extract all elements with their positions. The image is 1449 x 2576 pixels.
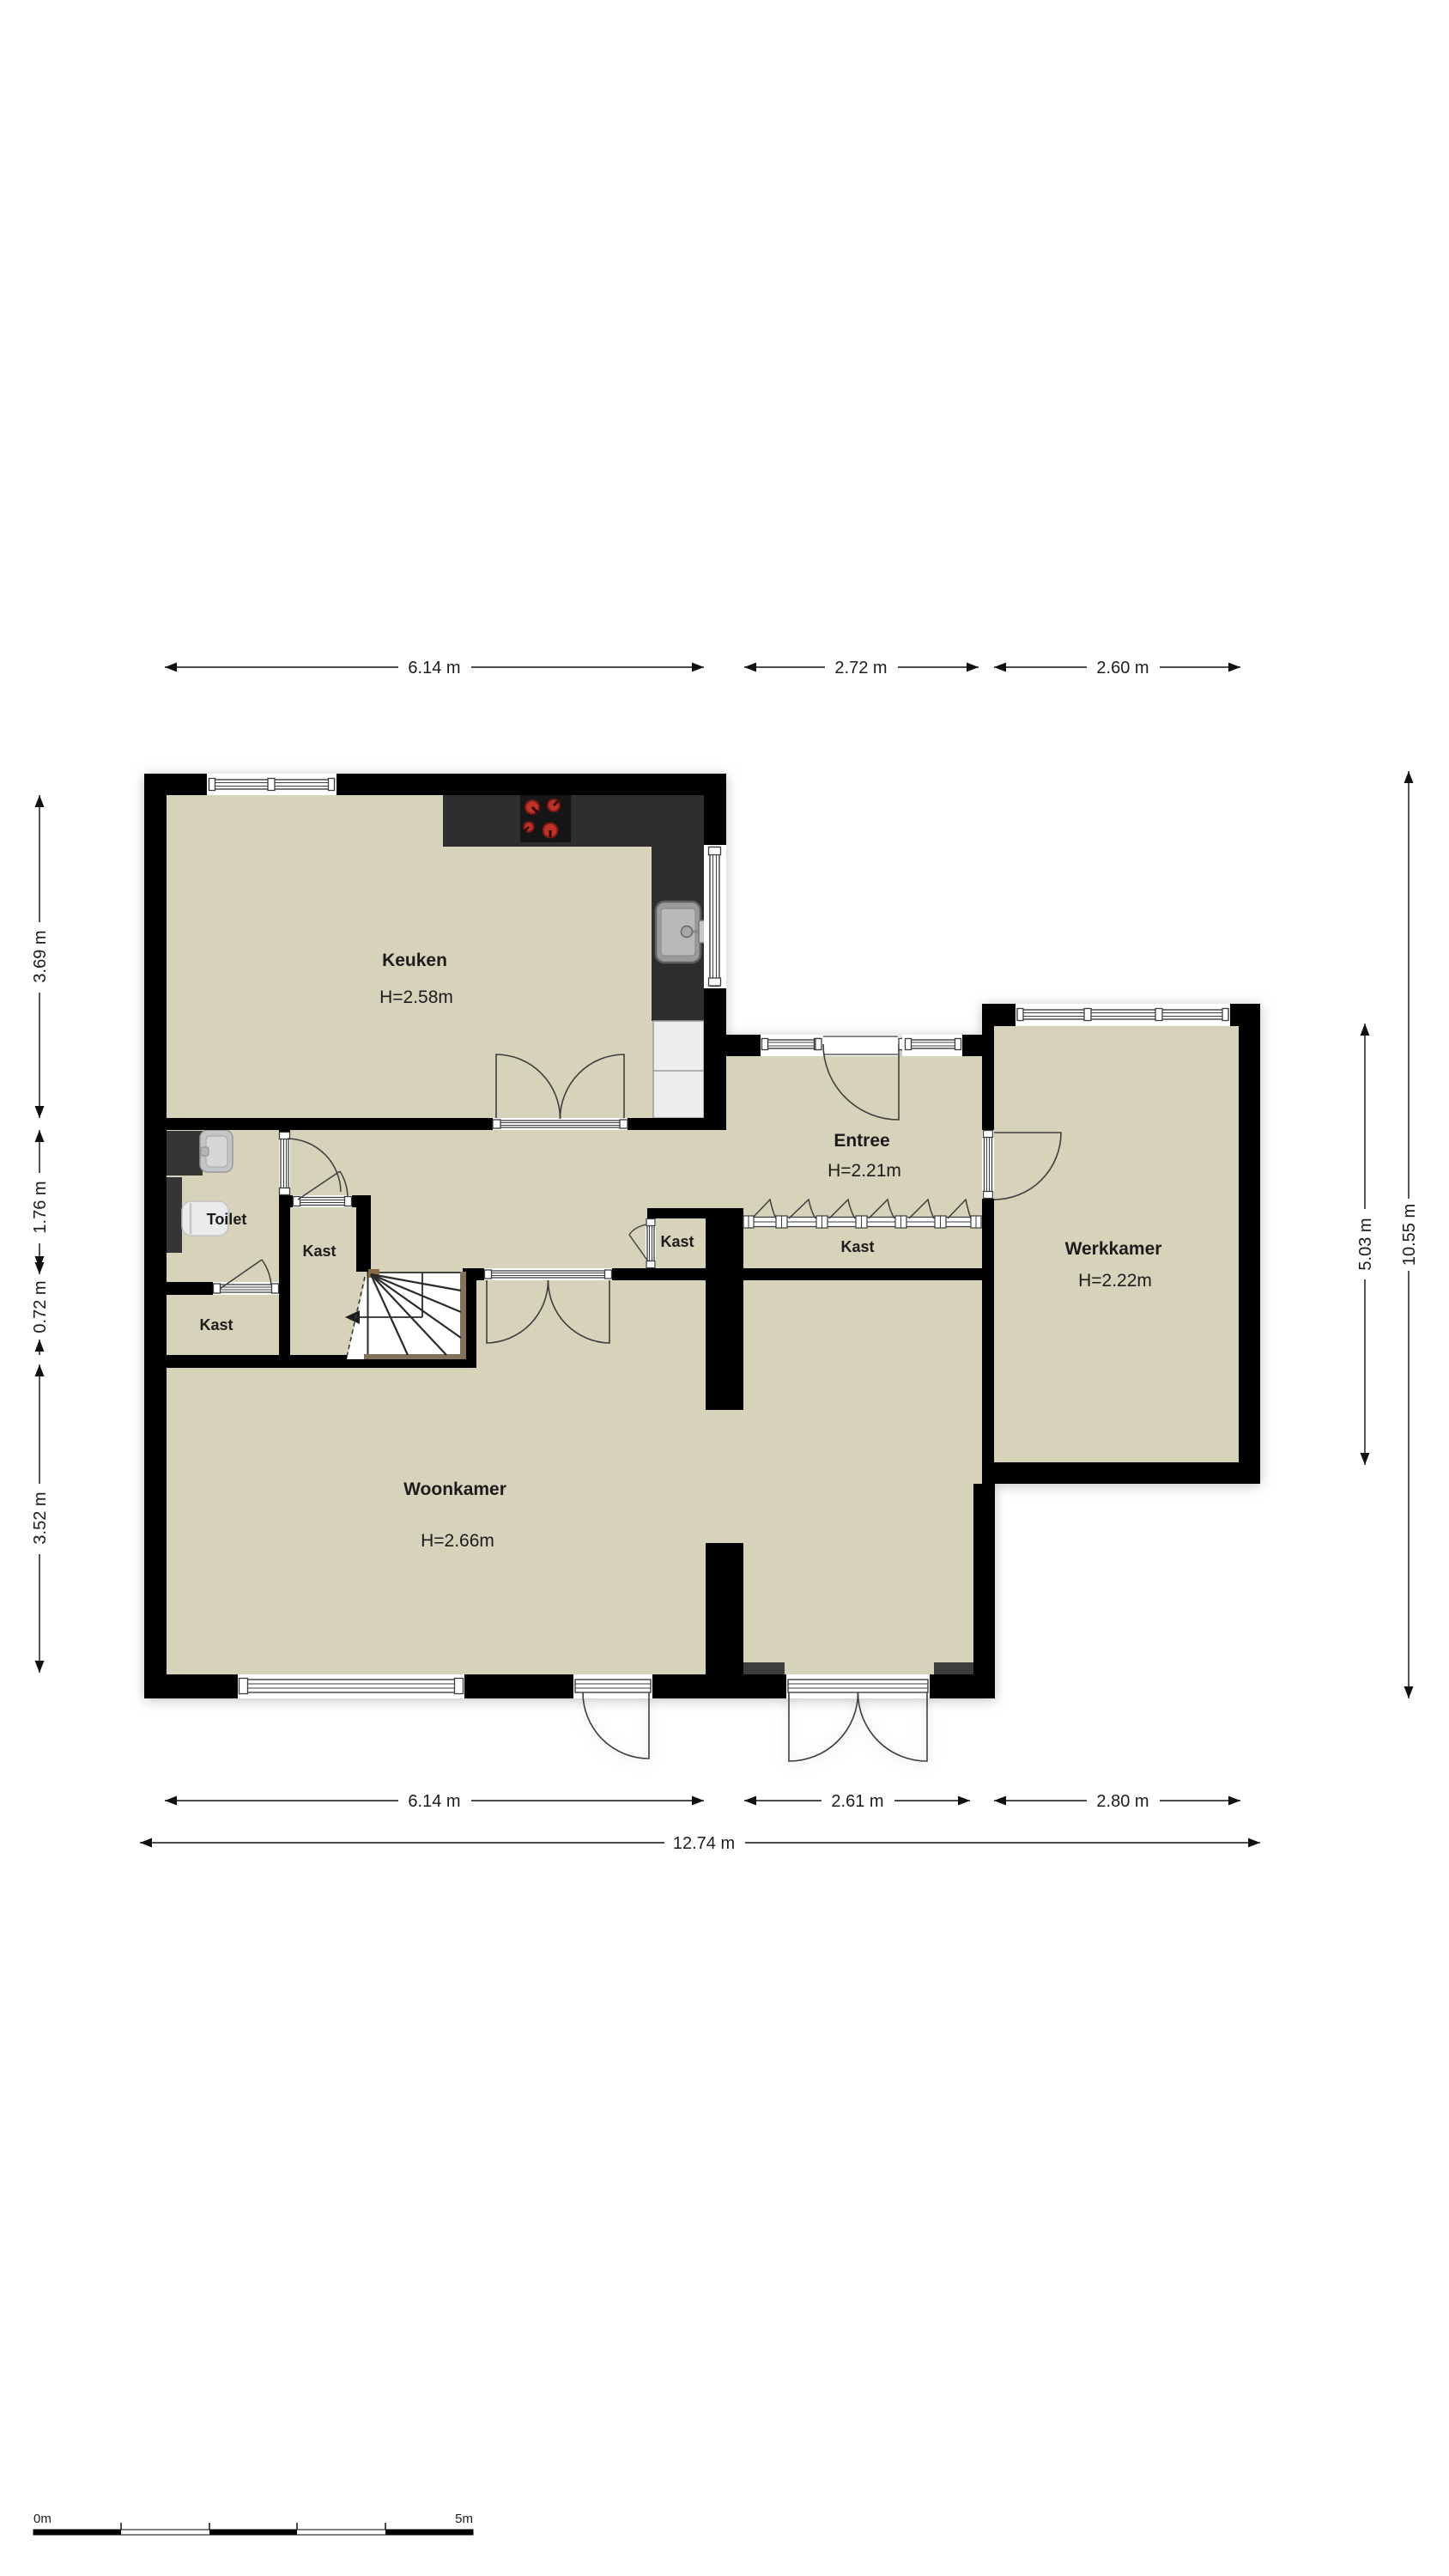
svg-text:3.52 m: 3.52 m bbox=[31, 1492, 50, 1544]
svg-text:Woonkamer: Woonkamer bbox=[403, 1479, 506, 1499]
svg-text:2.80 m: 2.80 m bbox=[1096, 1792, 1149, 1811]
svg-text:Kast: Kast bbox=[302, 1242, 336, 1260]
svg-text:Entree: Entree bbox=[834, 1131, 889, 1151]
svg-text:2.60 m: 2.60 m bbox=[1096, 659, 1149, 677]
svg-text:6.14 m: 6.14 m bbox=[408, 659, 460, 677]
svg-text:Keuken: Keuken bbox=[382, 951, 447, 970]
svg-text:6.14 m: 6.14 m bbox=[408, 1792, 460, 1811]
svg-text:0m: 0m bbox=[33, 2512, 52, 2526]
svg-text:Kast: Kast bbox=[199, 1316, 233, 1334]
svg-text:H=2.58m: H=2.58m bbox=[379, 987, 453, 1007]
svg-text:12.74 m: 12.74 m bbox=[673, 1834, 735, 1853]
svg-text:2.61 m: 2.61 m bbox=[831, 1792, 883, 1811]
svg-text:1.76 m: 1.76 m bbox=[31, 1181, 50, 1233]
svg-text:2.72 m: 2.72 m bbox=[834, 659, 887, 677]
svg-text:5.03 m: 5.03 m bbox=[1356, 1218, 1375, 1270]
svg-text:Kast: Kast bbox=[840, 1238, 874, 1255]
svg-text:0.72 m: 0.72 m bbox=[31, 1280, 50, 1333]
svg-text:10.55 m: 10.55 m bbox=[1400, 1204, 1419, 1266]
svg-text:H=2.66m: H=2.66m bbox=[421, 1531, 494, 1551]
svg-text:H=2.22m: H=2.22m bbox=[1078, 1271, 1152, 1291]
svg-text:3.69 m: 3.69 m bbox=[31, 930, 50, 982]
svg-text:5m: 5m bbox=[455, 2512, 473, 2526]
svg-text:Toilet: Toilet bbox=[207, 1211, 247, 1228]
svg-text:Werkkamer: Werkkamer bbox=[1065, 1239, 1162, 1259]
svg-text:H=2.21m: H=2.21m bbox=[828, 1161, 901, 1181]
svg-text:Kast: Kast bbox=[660, 1233, 694, 1250]
